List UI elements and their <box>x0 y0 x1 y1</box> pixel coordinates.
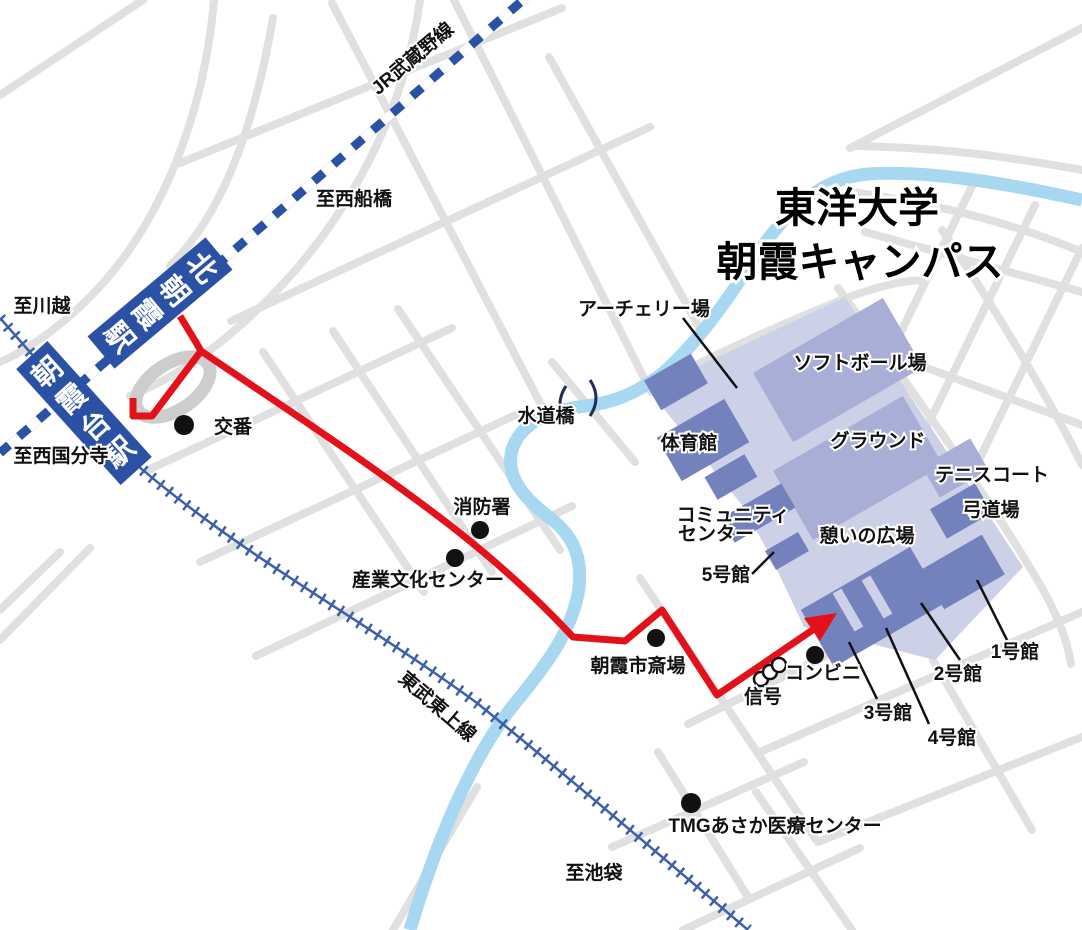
plaza-label: 憩いの広場 <box>819 524 914 547</box>
signal-label: 信号 <box>744 685 782 708</box>
bldg5-label: 5号館 <box>702 563 751 586</box>
toward-kawagoe-label: 至川越 <box>13 294 71 317</box>
map-canvas: 北 朝 霞 駅 朝 霞 台 駅 東洋大学 朝霞キャンパス J <box>0 0 1082 930</box>
campus-title-line2: 朝霞キャンパス <box>717 239 1004 285</box>
medical-center-label: TMGあさか医療センター <box>668 814 881 837</box>
bldg4-label: 4号館 <box>928 726 977 749</box>
campus-access-map: 北 朝 霞 駅 朝 霞 台 駅 東洋大学 朝霞キャンパス J <box>0 0 1082 930</box>
fire-station-dot <box>471 521 489 539</box>
route-from-kita-asaka <box>180 316 201 351</box>
industry-culture-center-label: 産業文化センター <box>352 568 504 591</box>
tobu-tojo-line <box>0 318 748 930</box>
gym-label: 体育館 <box>660 431 717 454</box>
tobu-line-label: 東武東上線 <box>394 667 481 747</box>
koban-label: 交番 <box>214 415 253 438</box>
toward-ikebukuro-label: 至池袋 <box>565 861 623 884</box>
bldg1-label: 1号館 <box>991 640 1040 663</box>
campus-title-line1: 東洋大学 <box>775 185 939 231</box>
community-center-label-line1: コミュニティ <box>677 505 790 526</box>
community-center-label-line2: センター <box>678 523 754 545</box>
fire-station-label: 消防署 <box>453 495 510 518</box>
archery-label: アーチェリー場 <box>578 298 710 320</box>
bldg2-label: 2号館 <box>934 662 983 685</box>
toward-nishifunabashi-label: 至西船橋 <box>316 187 393 210</box>
funeral-hall-label: 朝霞市斎場 <box>590 654 685 677</box>
tennis-label: テニスコート <box>935 465 1049 486</box>
koban-dot <box>174 415 194 435</box>
bridge-label: 水道橋 <box>517 404 575 427</box>
funeral-hall-dot <box>647 629 665 647</box>
ground-label: グラウンド <box>830 429 925 452</box>
industry-culture-center-dot <box>446 549 464 567</box>
convenience-store-dot <box>806 646 824 664</box>
medical-center-dot <box>681 793 701 813</box>
softball-label: ソフトボール場 <box>793 352 926 374</box>
kyudo-label: 弓道場 <box>962 498 1019 521</box>
convenience-store-label: コンビニ <box>785 662 861 684</box>
bldg5-pointer <box>752 552 774 574</box>
bldg3-label: 3号館 <box>864 701 913 724</box>
toward-nishikokubunji-label: 至西国分寺 <box>13 445 108 467</box>
